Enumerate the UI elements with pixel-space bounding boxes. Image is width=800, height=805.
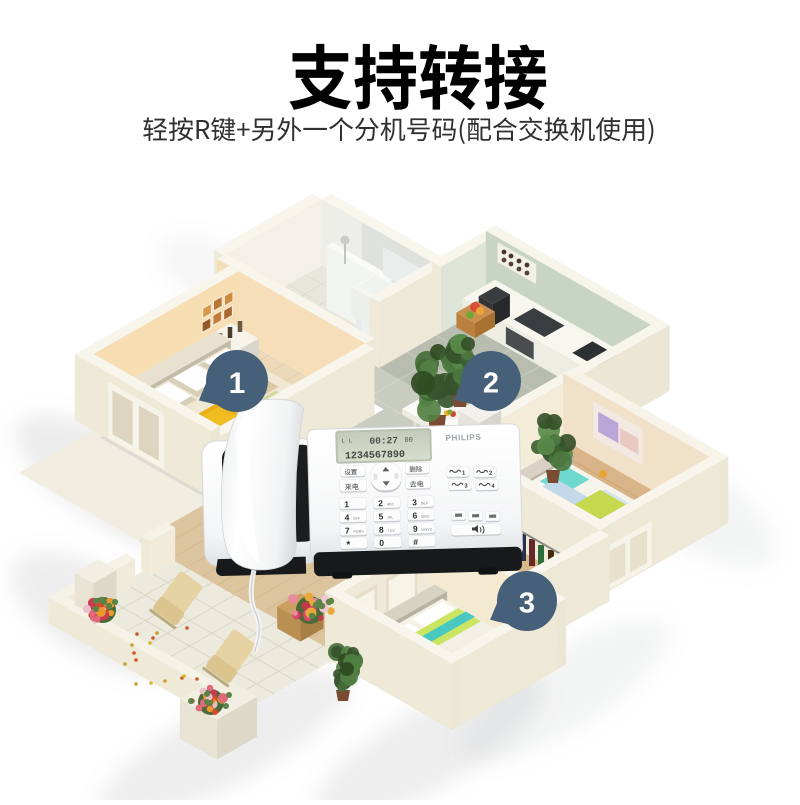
svg-text:PQRS: PQRS: [353, 530, 364, 534]
svg-text:1: 1: [229, 367, 246, 400]
svg-text:5: 5: [378, 511, 383, 521]
svg-text:6: 6: [412, 510, 417, 520]
svg-text:MNO: MNO: [421, 514, 430, 518]
svg-text:1234567890: 1234567890: [345, 450, 405, 463]
svg-text:DEF: DEF: [421, 501, 429, 505]
svg-text:L L: L L: [341, 437, 352, 444]
svg-text:00: 00: [404, 437, 413, 445]
svg-text:1: 1: [344, 499, 349, 509]
svg-text:3: 3: [412, 497, 417, 507]
svg-text:JKL: JKL: [387, 515, 393, 519]
svg-text:ABC: ABC: [387, 502, 395, 506]
svg-text:0: 0: [379, 538, 384, 548]
svg-text:2: 2: [378, 498, 383, 508]
svg-text:00:27: 00:27: [369, 435, 398, 447]
svg-text:3: 3: [519, 587, 535, 619]
svg-text:#: #: [413, 537, 418, 547]
svg-text:WXYZ: WXYZ: [421, 528, 432, 532]
svg-text:PHILIPS: PHILIPS: [445, 433, 481, 443]
svg-text:TUV: TUV: [387, 529, 395, 533]
svg-text:*: *: [346, 540, 350, 551]
svg-text:7: 7: [345, 526, 350, 536]
svg-text:8: 8: [379, 525, 384, 535]
svg-text:4: 4: [344, 512, 349, 522]
svg-text:9: 9: [413, 524, 418, 534]
svg-text:2: 2: [483, 367, 499, 399]
svg-text:GHI: GHI: [353, 516, 359, 520]
